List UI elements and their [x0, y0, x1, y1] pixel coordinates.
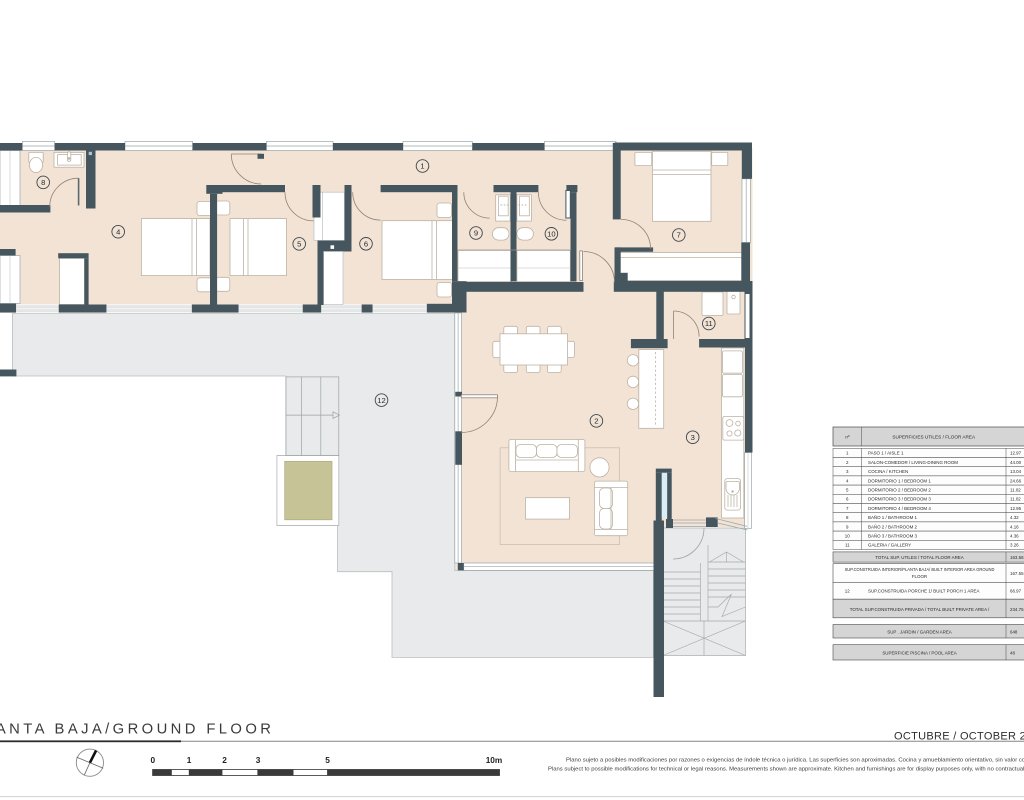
svg-text:4.32: 4.32	[1010, 515, 1019, 520]
svg-text:163.56: 163.56	[1010, 555, 1024, 560]
svg-text:12: 12	[845, 589, 850, 594]
svg-text:10m: 10m	[486, 755, 503, 765]
svg-text:PASO 1 / AISLE 1: PASO 1 / AISLE 1	[868, 451, 904, 456]
svg-text:11: 11	[705, 319, 713, 328]
svg-text:12.95: 12.95	[1010, 506, 1022, 511]
svg-text:TOTAL SUP.CONSTRUIDA PRIVADA /: TOTAL SUP.CONSTRUIDA PRIVADA / TOTAL BUI…	[850, 607, 990, 612]
svg-text:GALERIA / GALLERY: GALERIA / GALLERY	[868, 543, 911, 548]
svg-text:4: 4	[116, 227, 120, 236]
svg-text:BAÑO 3 / BATHROOM 3: BAÑO 3 / BATHROOM 3	[868, 533, 918, 539]
svg-text:1: 1	[420, 162, 424, 171]
svg-text:BAÑO 2 / BATHROOM 2: BAÑO 2 / BATHROOM 2	[868, 523, 918, 529]
svg-text:4.36: 4.36	[1010, 534, 1019, 539]
svg-text:Plano sujeto a posibles modifi: Plano sujeto a posibles modificaciones p…	[566, 758, 1024, 764]
svg-text:SUP.CONSTRUIDA INTERIOR/PLANTA: SUP.CONSTRUIDA INTERIOR/PLANTA BAJA/ BUI…	[845, 567, 995, 572]
svg-text:9: 9	[474, 229, 478, 238]
svg-text:DORMITORIO 3 / BEDROOM 3: DORMITORIO 3 / BEDROOM 3	[868, 497, 931, 502]
svg-text:11: 11	[845, 543, 850, 548]
svg-text:12: 12	[377, 396, 385, 405]
svg-text:SUPERFICIE PISCINA / POOL ARE: SUPERFICIE PISCINA / POOL AREA	[882, 651, 956, 656]
svg-text:Plans subject to possible modi: Plans subject to possible modifications …	[548, 767, 1024, 773]
svg-text:SUPERFICIES UTILES / FLOOR AR: SUPERFICIES UTILES / FLOOR AREA	[892, 435, 976, 440]
svg-text:10: 10	[845, 534, 850, 539]
svg-text:12.97: 12.97	[1010, 451, 1022, 456]
svg-text:SUP . JARDIN / GARDEN AREA: SUP . JARDIN / GARDEN AREA	[887, 630, 952, 635]
svg-text:8: 8	[41, 178, 45, 187]
svg-text:13.04: 13.04	[1010, 469, 1022, 474]
svg-text:DORMITORIO 1 / BEDROOM 1: DORMITORIO 1 / BEDROOM 1	[868, 478, 931, 483]
svg-text:DORMITORIO 2 / BEDROOM 2: DORMITORIO 2 / BEDROOM 2	[868, 488, 931, 493]
svg-text:4.16: 4.16	[1010, 524, 1019, 529]
svg-text:5: 5	[297, 240, 301, 249]
svg-text:FLOOR: FLOOR	[912, 574, 927, 579]
svg-text:11.02: 11.02	[1010, 488, 1021, 493]
svg-text:7: 7	[677, 231, 681, 240]
svg-text:0: 0	[150, 755, 155, 765]
svg-text:SALON-COMEDOR / LIVING-DINING: SALON-COMEDOR / LIVING-DINING ROOM	[868, 460, 958, 465]
svg-text:5: 5	[325, 755, 330, 765]
svg-text:44.00: 44.00	[1010, 460, 1022, 465]
svg-text:COCINA / KITCHEN: COCINA / KITCHEN	[868, 469, 908, 474]
svg-text:3: 3	[256, 755, 261, 765]
svg-text:PLANTA BAJA/GROUND FLOOR: PLANTA BAJA/GROUND FLOOR	[0, 722, 274, 738]
svg-text:3.26: 3.26	[1010, 543, 1019, 548]
svg-text:1: 1	[187, 755, 192, 765]
svg-text:6: 6	[364, 240, 368, 249]
svg-text:48: 48	[1010, 651, 1015, 656]
svg-text:OCTUBRE / OCTOBER 2023: OCTUBRE / OCTOBER 2023	[894, 730, 1024, 742]
svg-text:DORMITORIO 4 / BEDROOM 4: DORMITORIO 4 / BEDROOM 4	[868, 506, 931, 511]
svg-text:TOTAL SUP. UTILES / TOTAL FLOO: TOTAL SUP. UTILES / TOTAL FLOOR AREA	[875, 555, 963, 560]
svg-text:3: 3	[691, 433, 695, 442]
svg-text:11.02: 11.02	[1010, 497, 1021, 502]
svg-text:nº: nº	[845, 435, 849, 440]
svg-text:24.66: 24.66	[1010, 478, 1022, 483]
svg-text:10: 10	[547, 230, 555, 239]
svg-text:66.97: 66.97	[1010, 589, 1022, 594]
svg-text:167.55: 167.55	[1010, 571, 1024, 576]
svg-text:2: 2	[594, 417, 598, 426]
svg-text:234.75: 234.75	[1010, 607, 1024, 612]
svg-text:BAÑO 1 / BATHROOM 1: BAÑO 1 / BATHROOM 1	[868, 514, 918, 520]
svg-text:SUP.CONSTRUIDA PORCHE 1/ BUILT: SUP.CONSTRUIDA PORCHE 1/ BUILT PORCH 1 A…	[868, 589, 979, 594]
svg-text:648: 648	[1010, 630, 1018, 635]
svg-text:2: 2	[222, 755, 227, 765]
